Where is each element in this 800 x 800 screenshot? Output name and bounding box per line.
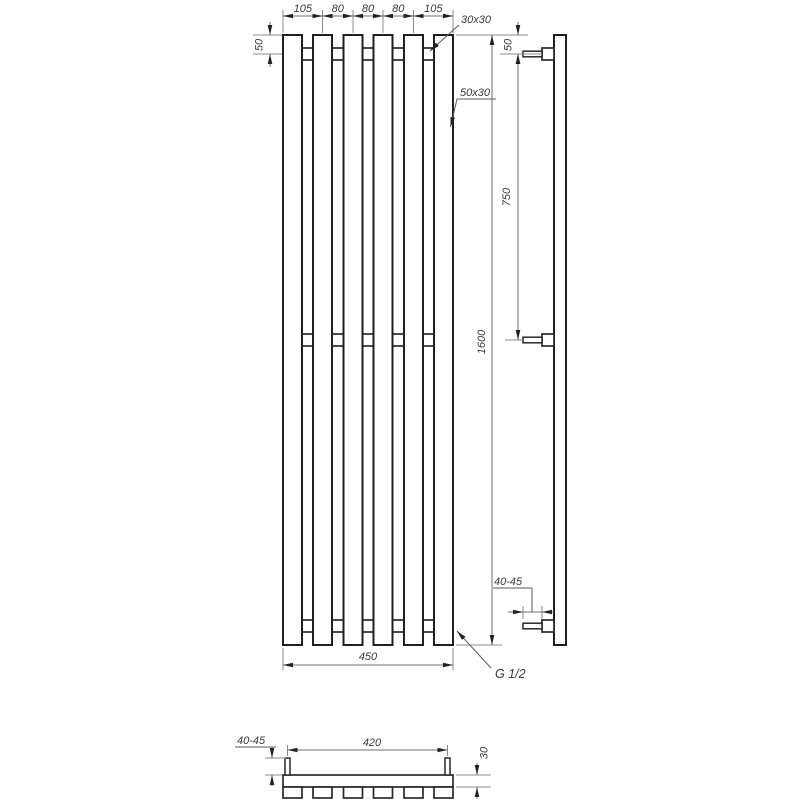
label-g12: G 1/2 (495, 667, 526, 681)
dim-label-420: 420 (363, 737, 382, 749)
bar-profile-callout: 50x30 (451, 87, 497, 127)
label-30x30: 30x30 (461, 14, 492, 26)
top-collector (283, 48, 453, 60)
dim-label-30: 30 (479, 746, 491, 759)
dim-label-105-right: 105 (424, 3, 443, 15)
collector-plan (283, 775, 453, 787)
dim-label-80-2: 80 (362, 3, 375, 15)
dim-label-750: 750 (501, 187, 513, 206)
connection-pipe-bottom (523, 623, 542, 629)
middle-collector (283, 334, 453, 346)
top-protrusion-dimension: 40-45 (235, 735, 286, 786)
bar-section (313, 787, 332, 798)
side-spacing-dimension: 750 (501, 54, 522, 340)
front-offset-dimension: 50 (253, 22, 282, 67)
collector-end-top (542, 48, 554, 60)
width-dimension: 450 (283, 648, 453, 670)
bar-section (344, 787, 363, 798)
bar-section (374, 787, 393, 798)
collector-end-middle (542, 334, 554, 346)
bottom-collector (283, 620, 453, 632)
dim-label-50-side: 50 (503, 38, 515, 51)
dim-label-80-3: 80 (392, 3, 405, 15)
front-view (283, 35, 453, 645)
bar-section (283, 787, 302, 798)
dim-label-80-1: 80 (332, 3, 345, 15)
dim-label-50-front: 50 (254, 38, 266, 51)
technical-drawing: 105 80 80 80 105 50 30x30 50x30 1600 450 (0, 0, 800, 800)
bar-profile (283, 35, 302, 645)
bar-section (404, 787, 423, 798)
side-profile (554, 35, 566, 645)
side-offset-dimension: 50 (500, 22, 541, 67)
dim-label-105-left: 105 (294, 3, 313, 15)
dim-label-450: 450 (359, 651, 378, 663)
thread-callout: G 1/2 (457, 631, 526, 681)
connection-pipe-left (285, 758, 290, 775)
bar-profile (404, 35, 423, 645)
side-protrusion-dimension: 40-45 (493, 576, 554, 619)
connection-pipe-right (445, 758, 450, 775)
bar-profile (313, 35, 332, 645)
dim-label-1600: 1600 (476, 329, 488, 354)
bar-section (434, 787, 453, 798)
bar-profile (344, 35, 363, 645)
connection-pipe-middle (523, 337, 542, 343)
bar-profile (374, 35, 393, 645)
top-view (283, 758, 453, 798)
dim-label-4045-top: 40-45 (237, 735, 266, 747)
collector-end-bottom (542, 620, 554, 632)
dim-label-4045-side: 40-45 (494, 576, 523, 588)
leader-line (457, 631, 491, 668)
top-depth-dimension: 30 (456, 746, 491, 799)
front-top-dimensions: 105 80 80 80 105 (283, 3, 453, 33)
top-spacing-dimension: 420 (288, 737, 448, 756)
label-50x30: 50x30 (460, 87, 491, 99)
side-view (523, 35, 566, 645)
